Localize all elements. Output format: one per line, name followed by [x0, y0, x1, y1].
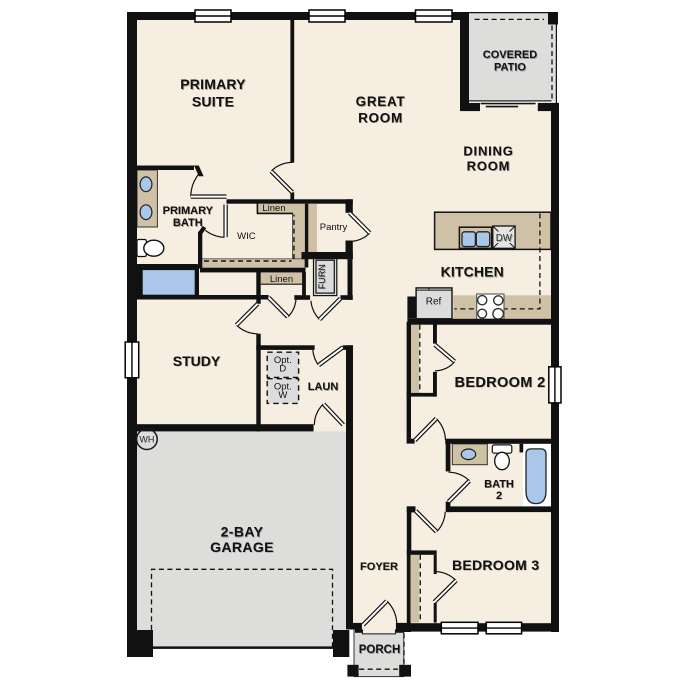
svg-text:FURN: FURN	[317, 264, 327, 289]
svg-text:COVERED: COVERED	[483, 49, 537, 61]
svg-text:ROOM: ROOM	[467, 158, 511, 173]
svg-text:BEDROOM 2: BEDROOM 2	[455, 375, 546, 391]
svg-text:2-BAY: 2-BAY	[221, 524, 264, 540]
svg-text:GREAT: GREAT	[356, 94, 406, 109]
svg-text:Linen: Linen	[262, 203, 285, 214]
svg-text:Ref: Ref	[426, 297, 442, 308]
svg-text:D: D	[279, 364, 286, 375]
svg-text:PRIMARY: PRIMARY	[180, 76, 246, 92]
svg-text:ROOM: ROOM	[358, 110, 403, 125]
svg-text:GARAGE: GARAGE	[210, 539, 274, 555]
svg-text:2: 2	[496, 490, 502, 502]
svg-text:BEDROOM 3: BEDROOM 3	[452, 557, 540, 573]
svg-text:STUDY: STUDY	[173, 353, 221, 369]
svg-text:BATH: BATH	[484, 478, 514, 490]
svg-text:W: W	[278, 390, 287, 401]
svg-text:LAUN: LAUN	[308, 381, 339, 393]
svg-text:WIC: WIC	[237, 231, 256, 242]
svg-text:Pantry: Pantry	[320, 222, 348, 233]
svg-text:DINING: DINING	[463, 143, 513, 158]
svg-text:KITCHEN: KITCHEN	[441, 264, 504, 280]
svg-text:PORCH: PORCH	[359, 644, 401, 656]
svg-text:SUITE: SUITE	[192, 93, 234, 109]
svg-text:PATIO: PATIO	[494, 62, 526, 74]
svg-text:BATH: BATH	[173, 217, 203, 229]
svg-text:DW: DW	[496, 233, 513, 244]
svg-text:WH: WH	[139, 435, 154, 445]
svg-text:FOYER: FOYER	[360, 561, 398, 573]
svg-text:Linen: Linen	[270, 274, 293, 285]
svg-text:PRIMARY: PRIMARY	[163, 205, 214, 217]
